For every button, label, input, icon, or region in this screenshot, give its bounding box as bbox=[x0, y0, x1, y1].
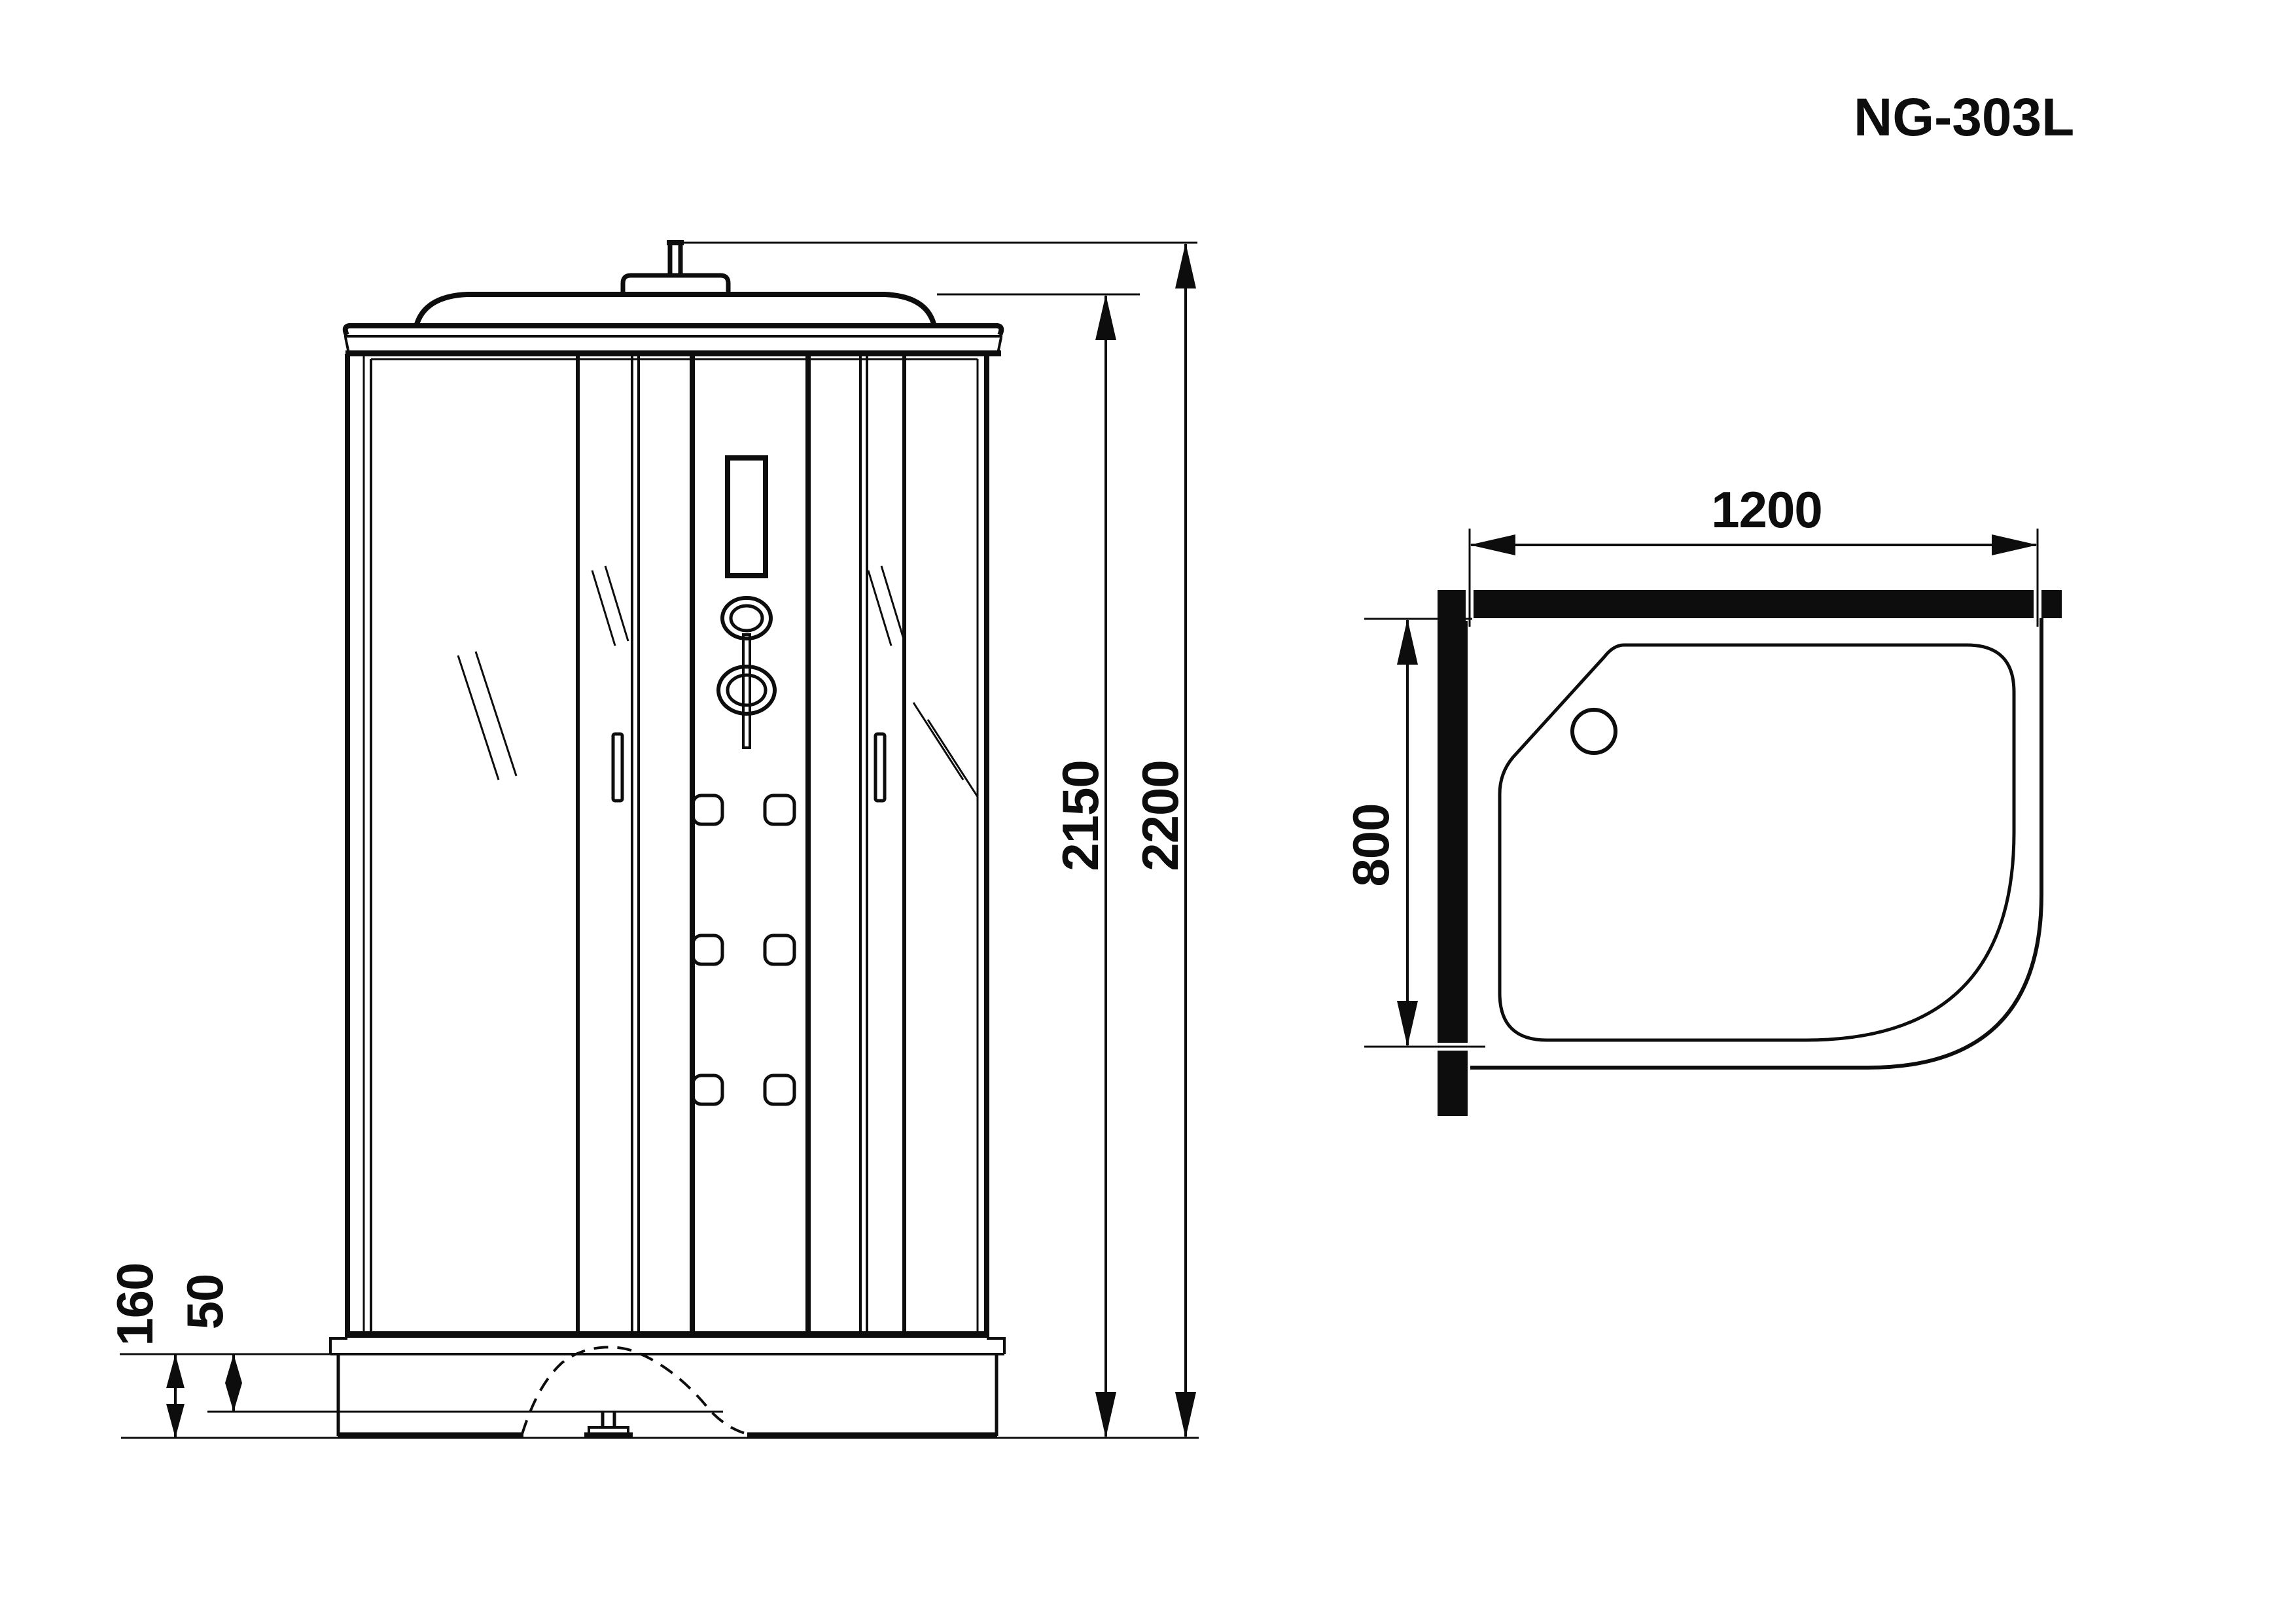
shower-tray-outer bbox=[1470, 618, 2041, 1068]
dimension-cabin-height: 2150 bbox=[937, 294, 1140, 1438]
dim-2200-label: 2200 bbox=[1131, 760, 1189, 871]
shower-tray-basin bbox=[1500, 645, 2014, 1040]
control-column bbox=[693, 458, 794, 1104]
drain-icon bbox=[1572, 710, 1616, 753]
drain-pipe-icon bbox=[584, 1412, 633, 1435]
dimension-overall-height: 2200 bbox=[683, 243, 1197, 1438]
dim-1200-label: 1200 bbox=[1711, 481, 1822, 538]
door-handle-left bbox=[613, 734, 622, 801]
plan-view: 1200 800 bbox=[1342, 481, 2062, 1116]
roof-cap bbox=[623, 275, 728, 294]
massage-jets bbox=[693, 795, 794, 1104]
shower-base bbox=[330, 1335, 1004, 1436]
door-handle-right bbox=[875, 734, 885, 801]
speaker-icon bbox=[722, 598, 771, 638]
roof-dome bbox=[416, 294, 934, 326]
dimension-tray-step-height: 50 bbox=[176, 1274, 723, 1412]
technical-drawing-canvas: 2200 2150 160 50 bbox=[0, 0, 2296, 1623]
drain-recess-dashed bbox=[522, 1347, 747, 1434]
mirror-panel bbox=[728, 458, 766, 576]
front-elevation-view: 2200 2150 160 50 bbox=[106, 243, 1199, 1438]
glass-panels-frame bbox=[347, 354, 987, 1335]
dim-50-label: 50 bbox=[176, 1274, 234, 1330]
top-cornice bbox=[344, 326, 1002, 359]
dim-160-label: 160 bbox=[106, 1263, 164, 1346]
dim-800-label: 800 bbox=[1342, 803, 1400, 886]
faucet-icon bbox=[718, 635, 775, 748]
model-label: NG-303L bbox=[1854, 88, 2074, 147]
glass-reflection-marks bbox=[458, 566, 978, 797]
vent-pipe-icon bbox=[667, 243, 684, 277]
dim-2150-label: 2150 bbox=[1051, 760, 1109, 871]
